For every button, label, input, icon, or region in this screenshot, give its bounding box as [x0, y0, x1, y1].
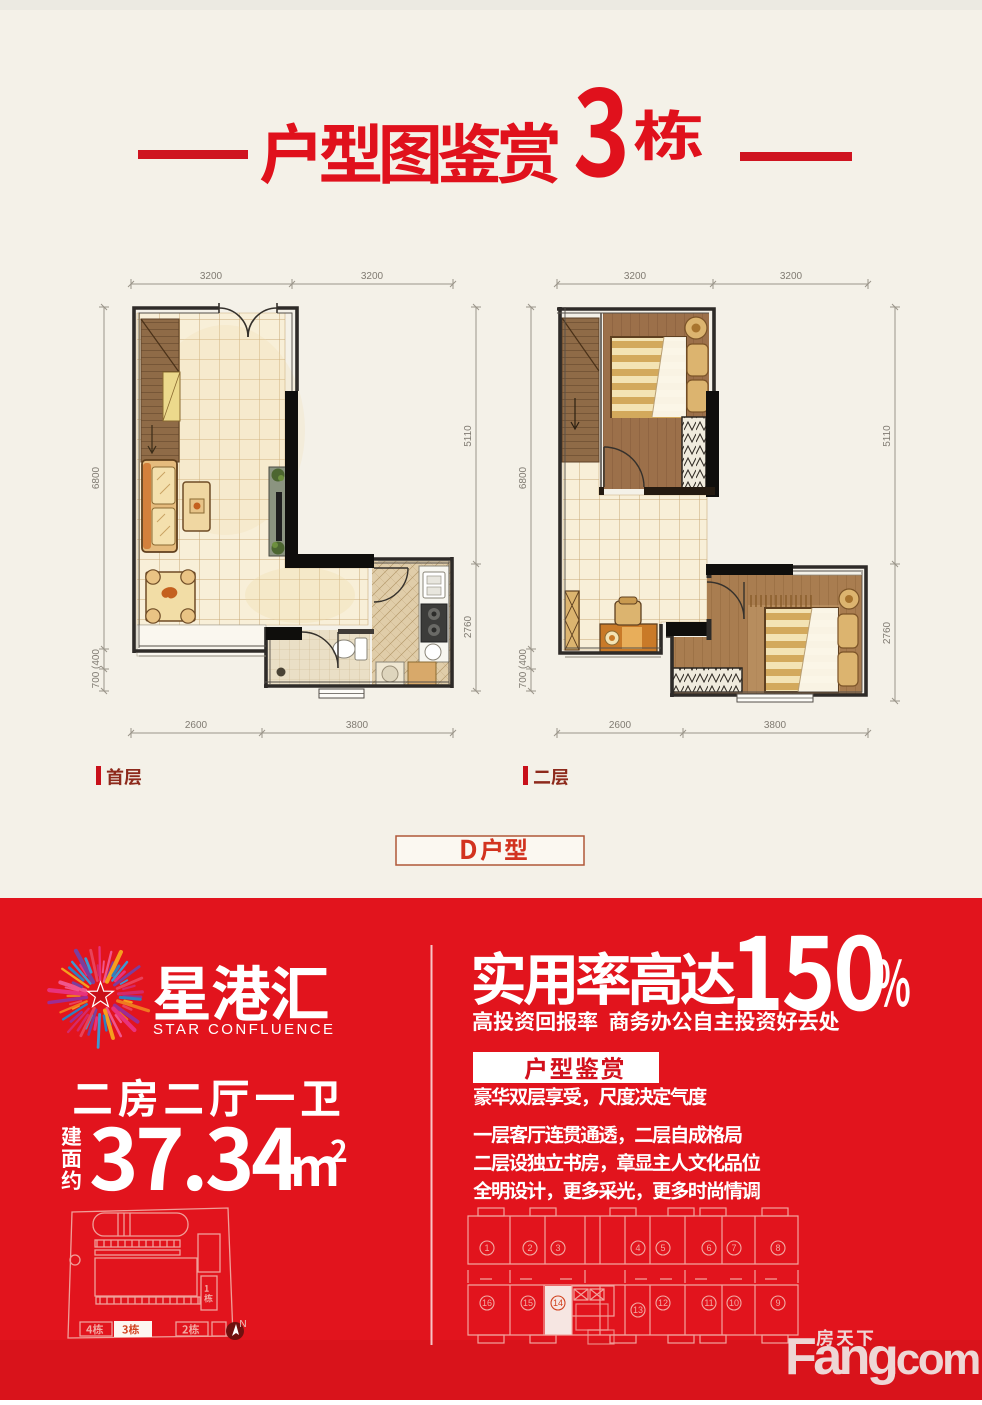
svg-text:4: 4 [635, 1243, 640, 1253]
svg-text:STAR CONFLUENCE: STAR CONFLUENCE [153, 1021, 335, 1038]
svg-text:8: 8 [775, 1243, 780, 1253]
svg-text:13: 13 [633, 1305, 643, 1315]
svg-text:12: 12 [658, 1298, 668, 1308]
svg-text:3200: 3200 [361, 271, 384, 282]
svg-text:5110: 5110 [882, 425, 893, 447]
svg-text:6800: 6800 [518, 466, 529, 489]
svg-text:3800: 3800 [346, 720, 369, 731]
svg-text:10: 10 [729, 1298, 739, 1308]
svg-text:16: 16 [482, 1298, 492, 1308]
svg-text:2760: 2760 [463, 615, 474, 638]
svg-text:15: 15 [523, 1298, 533, 1308]
svg-text:7: 7 [731, 1243, 736, 1253]
svg-text:6: 6 [706, 1243, 711, 1253]
svg-text:Fang: Fang [785, 1328, 896, 1386]
svg-text:2600: 2600 [609, 720, 632, 731]
svg-text:(400: (400 [518, 649, 529, 669]
svg-text:N: N [239, 1319, 246, 1330]
svg-text:3: 3 [555, 1243, 560, 1253]
svg-text:3200: 3200 [624, 271, 647, 282]
svg-text:3800: 3800 [764, 720, 787, 731]
svg-text:3200: 3200 [780, 271, 803, 282]
svg-text:5: 5 [660, 1243, 665, 1253]
svg-text:2: 2 [527, 1243, 532, 1253]
svg-text:6800: 6800 [91, 466, 102, 489]
svg-text:700: 700 [91, 671, 102, 688]
svg-text:.com: .com [886, 1335, 979, 1384]
svg-text:(400: (400 [91, 649, 102, 669]
svg-text:700: 700 [518, 671, 529, 688]
svg-text:5110: 5110 [463, 425, 474, 447]
svg-text:1: 1 [484, 1243, 489, 1253]
svg-text:2760: 2760 [882, 621, 893, 644]
svg-text:9: 9 [775, 1298, 780, 1308]
svg-text:2600: 2600 [185, 720, 208, 731]
svg-text:3200: 3200 [200, 271, 223, 282]
svg-text:11: 11 [704, 1298, 713, 1308]
svg-text:14: 14 [553, 1298, 563, 1308]
